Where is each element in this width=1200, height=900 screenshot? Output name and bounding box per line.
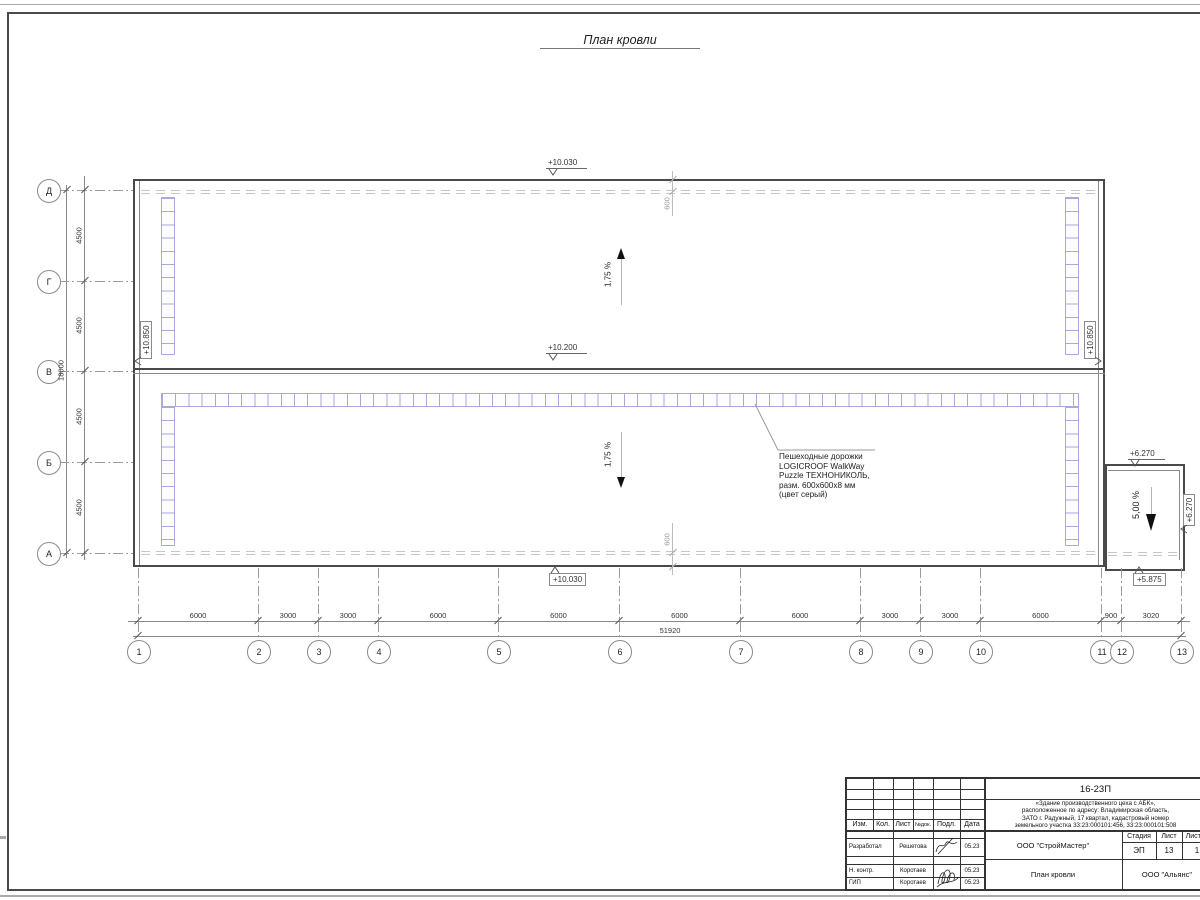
dim-label-col: 6000 bbox=[780, 611, 820, 620]
grid-bubble-row: А bbox=[37, 542, 61, 566]
elevation-arrow-icon bbox=[134, 356, 142, 366]
slope-arrow-down-icon bbox=[1146, 514, 1156, 531]
grid-bubble-col: 9 bbox=[909, 640, 933, 664]
tb-role: Разработал bbox=[847, 838, 895, 856]
walkway-strip-top-right bbox=[1065, 197, 1079, 355]
grid-bubble-col: 2 bbox=[247, 640, 271, 664]
tb-date: 05.23 bbox=[960, 838, 984, 856]
parapet-dash-top bbox=[141, 190, 1097, 191]
elevation-arrow-icon bbox=[1180, 524, 1188, 534]
tb-name: Решетова bbox=[893, 838, 933, 856]
tb-col-kol: Кол. bbox=[873, 819, 893, 830]
elevation-arrow-icon bbox=[548, 168, 558, 176]
grid-bubble-row: Д bbox=[37, 179, 61, 203]
tb-stage-value: ЭП bbox=[1122, 842, 1156, 859]
dim-label-col: 6000 bbox=[178, 611, 218, 620]
dim-label-row: 4500 bbox=[75, 306, 84, 346]
grid-bubble-col: 13 bbox=[1170, 640, 1194, 664]
parapet-dash-bottom-2 bbox=[141, 554, 1097, 555]
title-block: Изм. Кол. Лист №док. Подл. Дата Разработ… bbox=[845, 777, 1200, 891]
tb-sheets-value: 1 bbox=[1182, 842, 1200, 859]
tb-role: ГИП bbox=[847, 877, 895, 889]
slope-arrow-line bbox=[621, 257, 622, 305]
grid-extension-line bbox=[1181, 568, 1182, 640]
grid-extension-line bbox=[498, 568, 499, 640]
dim-label-col: 6000 bbox=[539, 611, 579, 620]
grid-extension-line bbox=[920, 568, 921, 640]
parapet-dash-bottom bbox=[141, 551, 1097, 552]
grid-bubble-col: 6 bbox=[608, 640, 632, 664]
walkway-row-bottom-section bbox=[161, 393, 1079, 407]
dim-label-col: 3020 bbox=[1131, 611, 1171, 620]
elevation-roof-top: +10.030 bbox=[546, 158, 587, 169]
note-line: Пешеходные дорожки bbox=[779, 452, 909, 462]
dim-label-col: 3000 bbox=[930, 611, 970, 620]
slope-label-lower: 1,75 % bbox=[604, 435, 613, 475]
grid-extension-line bbox=[59, 462, 133, 463]
walkway-strip-bottom-right bbox=[1065, 406, 1079, 546]
note-line: разм. 600х600х8 мм bbox=[779, 481, 909, 491]
elevation-arrow-icon bbox=[550, 566, 560, 574]
tb-sheet-label: Лист bbox=[1156, 831, 1182, 842]
dim-label-row: 4500 bbox=[75, 487, 84, 527]
grid-bubble-col: 8 bbox=[849, 640, 873, 664]
walkway-strip-bottom-left bbox=[161, 406, 175, 546]
annex-top-wall-inner bbox=[1108, 470, 1180, 471]
note-leader-line bbox=[750, 398, 910, 458]
grid-extension-line bbox=[138, 568, 139, 640]
tb-sheets-label: Листов bbox=[1182, 831, 1200, 842]
tb-doc-number: 16-23П bbox=[984, 781, 1200, 797]
tb-col-podl: Подл. bbox=[933, 819, 960, 830]
tb-stage-label: Стадия bbox=[1122, 831, 1156, 842]
slope-arrow-line bbox=[1151, 487, 1152, 517]
dim-label-col-total: 51920 bbox=[640, 626, 700, 635]
grid-extension-line bbox=[980, 568, 981, 640]
slope-label-upper: 1,75 % bbox=[604, 255, 613, 295]
grid-bubble-col: 5 bbox=[487, 640, 511, 664]
annex-dash bbox=[1108, 552, 1180, 553]
slope-label-annex: 5,00 % bbox=[1131, 485, 1141, 525]
grid-extension-line bbox=[59, 190, 133, 191]
elevation-annex-bottom: +5.875 bbox=[1133, 573, 1166, 586]
parapet-dash-top-2 bbox=[141, 193, 1097, 194]
tb-sheet-value: 13 bbox=[1156, 842, 1182, 859]
elevation-arrow-icon bbox=[548, 353, 558, 361]
dim-label-col: 6000 bbox=[418, 611, 458, 620]
dim-label-col: 3000 bbox=[268, 611, 308, 620]
grid-bubble-col: 7 bbox=[729, 640, 753, 664]
dim-label-col: 900 bbox=[1091, 611, 1131, 620]
tb-date: 05.23 bbox=[960, 864, 984, 877]
signature bbox=[934, 862, 960, 889]
grid-extension-line bbox=[619, 568, 620, 640]
dim-label-col: 3000 bbox=[328, 611, 368, 620]
grid-bubble-row: Б bbox=[37, 451, 61, 475]
annex-right-wall-inner bbox=[1179, 470, 1180, 560]
tb-col-data: Дата bbox=[960, 819, 984, 830]
drawing-sheet: План кровли 600 bbox=[0, 0, 1200, 900]
elevation-arrow-icon bbox=[1134, 566, 1144, 574]
elevation-roof-mid: +10.200 bbox=[546, 343, 587, 354]
note-line: (цвет серый) bbox=[779, 490, 909, 500]
dim-label-row: 4500 bbox=[75, 396, 84, 436]
tb-project-description: «Здание производственного цеха с АБК», р… bbox=[986, 800, 1200, 829]
tb-col-list: Лист bbox=[893, 819, 913, 830]
grid-extension-line bbox=[59, 281, 133, 282]
tb-role: Н. контр. bbox=[847, 864, 895, 877]
elevation-arrow-icon bbox=[1130, 459, 1140, 467]
tb-date: 05.23 bbox=[960, 877, 984, 889]
grid-extension-line bbox=[59, 371, 133, 372]
walkway-strip-top-left bbox=[161, 197, 175, 355]
dim-line-cols-total bbox=[133, 636, 1186, 637]
grid-bubble-col: 3 bbox=[307, 640, 331, 664]
elevation-arrow-icon bbox=[1094, 356, 1102, 366]
dim-label-col: 3000 bbox=[870, 611, 910, 620]
grid-extension-line bbox=[258, 568, 259, 640]
dim-label-row-total: 18000 bbox=[57, 351, 66, 391]
grid-bubble-col: 4 bbox=[367, 640, 391, 664]
grid-extension-line bbox=[1121, 568, 1122, 640]
tb-col-ndok: №док. bbox=[913, 819, 933, 830]
tb-sheet-title: План кровли bbox=[984, 859, 1122, 889]
tb-company: ООО "СтройМастер" bbox=[984, 832, 1122, 859]
parapet-dim-top: 600 bbox=[663, 189, 672, 219]
tb-col-izm: Изм. bbox=[847, 819, 873, 830]
grid-bubble-col: 1 bbox=[127, 640, 151, 664]
middle-wall-axis-v bbox=[133, 368, 1105, 374]
slope-arrow-up-icon bbox=[617, 248, 625, 259]
grid-bubble-row: Г bbox=[37, 270, 61, 294]
parapet-dim-bottom: 600 bbox=[663, 525, 672, 555]
tb-name: Коротаев bbox=[893, 864, 933, 877]
grid-extension-line bbox=[740, 568, 741, 640]
grid-extension-line bbox=[318, 568, 319, 640]
slope-arrow-line bbox=[621, 432, 622, 480]
dim-label-col: 6000 bbox=[660, 611, 700, 620]
page-title: План кровли bbox=[540, 33, 700, 49]
grid-extension-line bbox=[1101, 568, 1102, 640]
walkway-note: Пешеходные дорожки LOGICROOF WalkWay Puz… bbox=[779, 452, 909, 500]
grid-extension-line bbox=[59, 553, 133, 554]
grid-extension-line bbox=[378, 568, 379, 640]
signature bbox=[934, 834, 960, 856]
tb-contractor: ООО "Альянс" bbox=[1122, 859, 1200, 889]
annex-dash-2 bbox=[1108, 555, 1180, 556]
grid-bubble-col: 12 bbox=[1110, 640, 1134, 664]
elevation-roof-bottom: +10.030 bbox=[549, 573, 586, 586]
grid-bubble-col: 10 bbox=[969, 640, 993, 664]
tb-name: Коротаев bbox=[893, 877, 933, 889]
dim-label-col: 6000 bbox=[1021, 611, 1061, 620]
note-line: LOGICROOF WalkWay bbox=[779, 462, 909, 472]
dim-line-cols bbox=[128, 621, 1190, 622]
note-line: Puzzle ТЕХНОНИКОЛЬ, bbox=[779, 471, 909, 481]
roof-plan: План кровли 600 bbox=[0, 0, 1200, 900]
elevation-annex-top: +6.270 bbox=[1128, 449, 1165, 460]
grid-extension-line bbox=[860, 568, 861, 640]
slope-arrow-down-icon bbox=[617, 477, 625, 488]
dim-label-row: 4500 bbox=[75, 215, 84, 255]
